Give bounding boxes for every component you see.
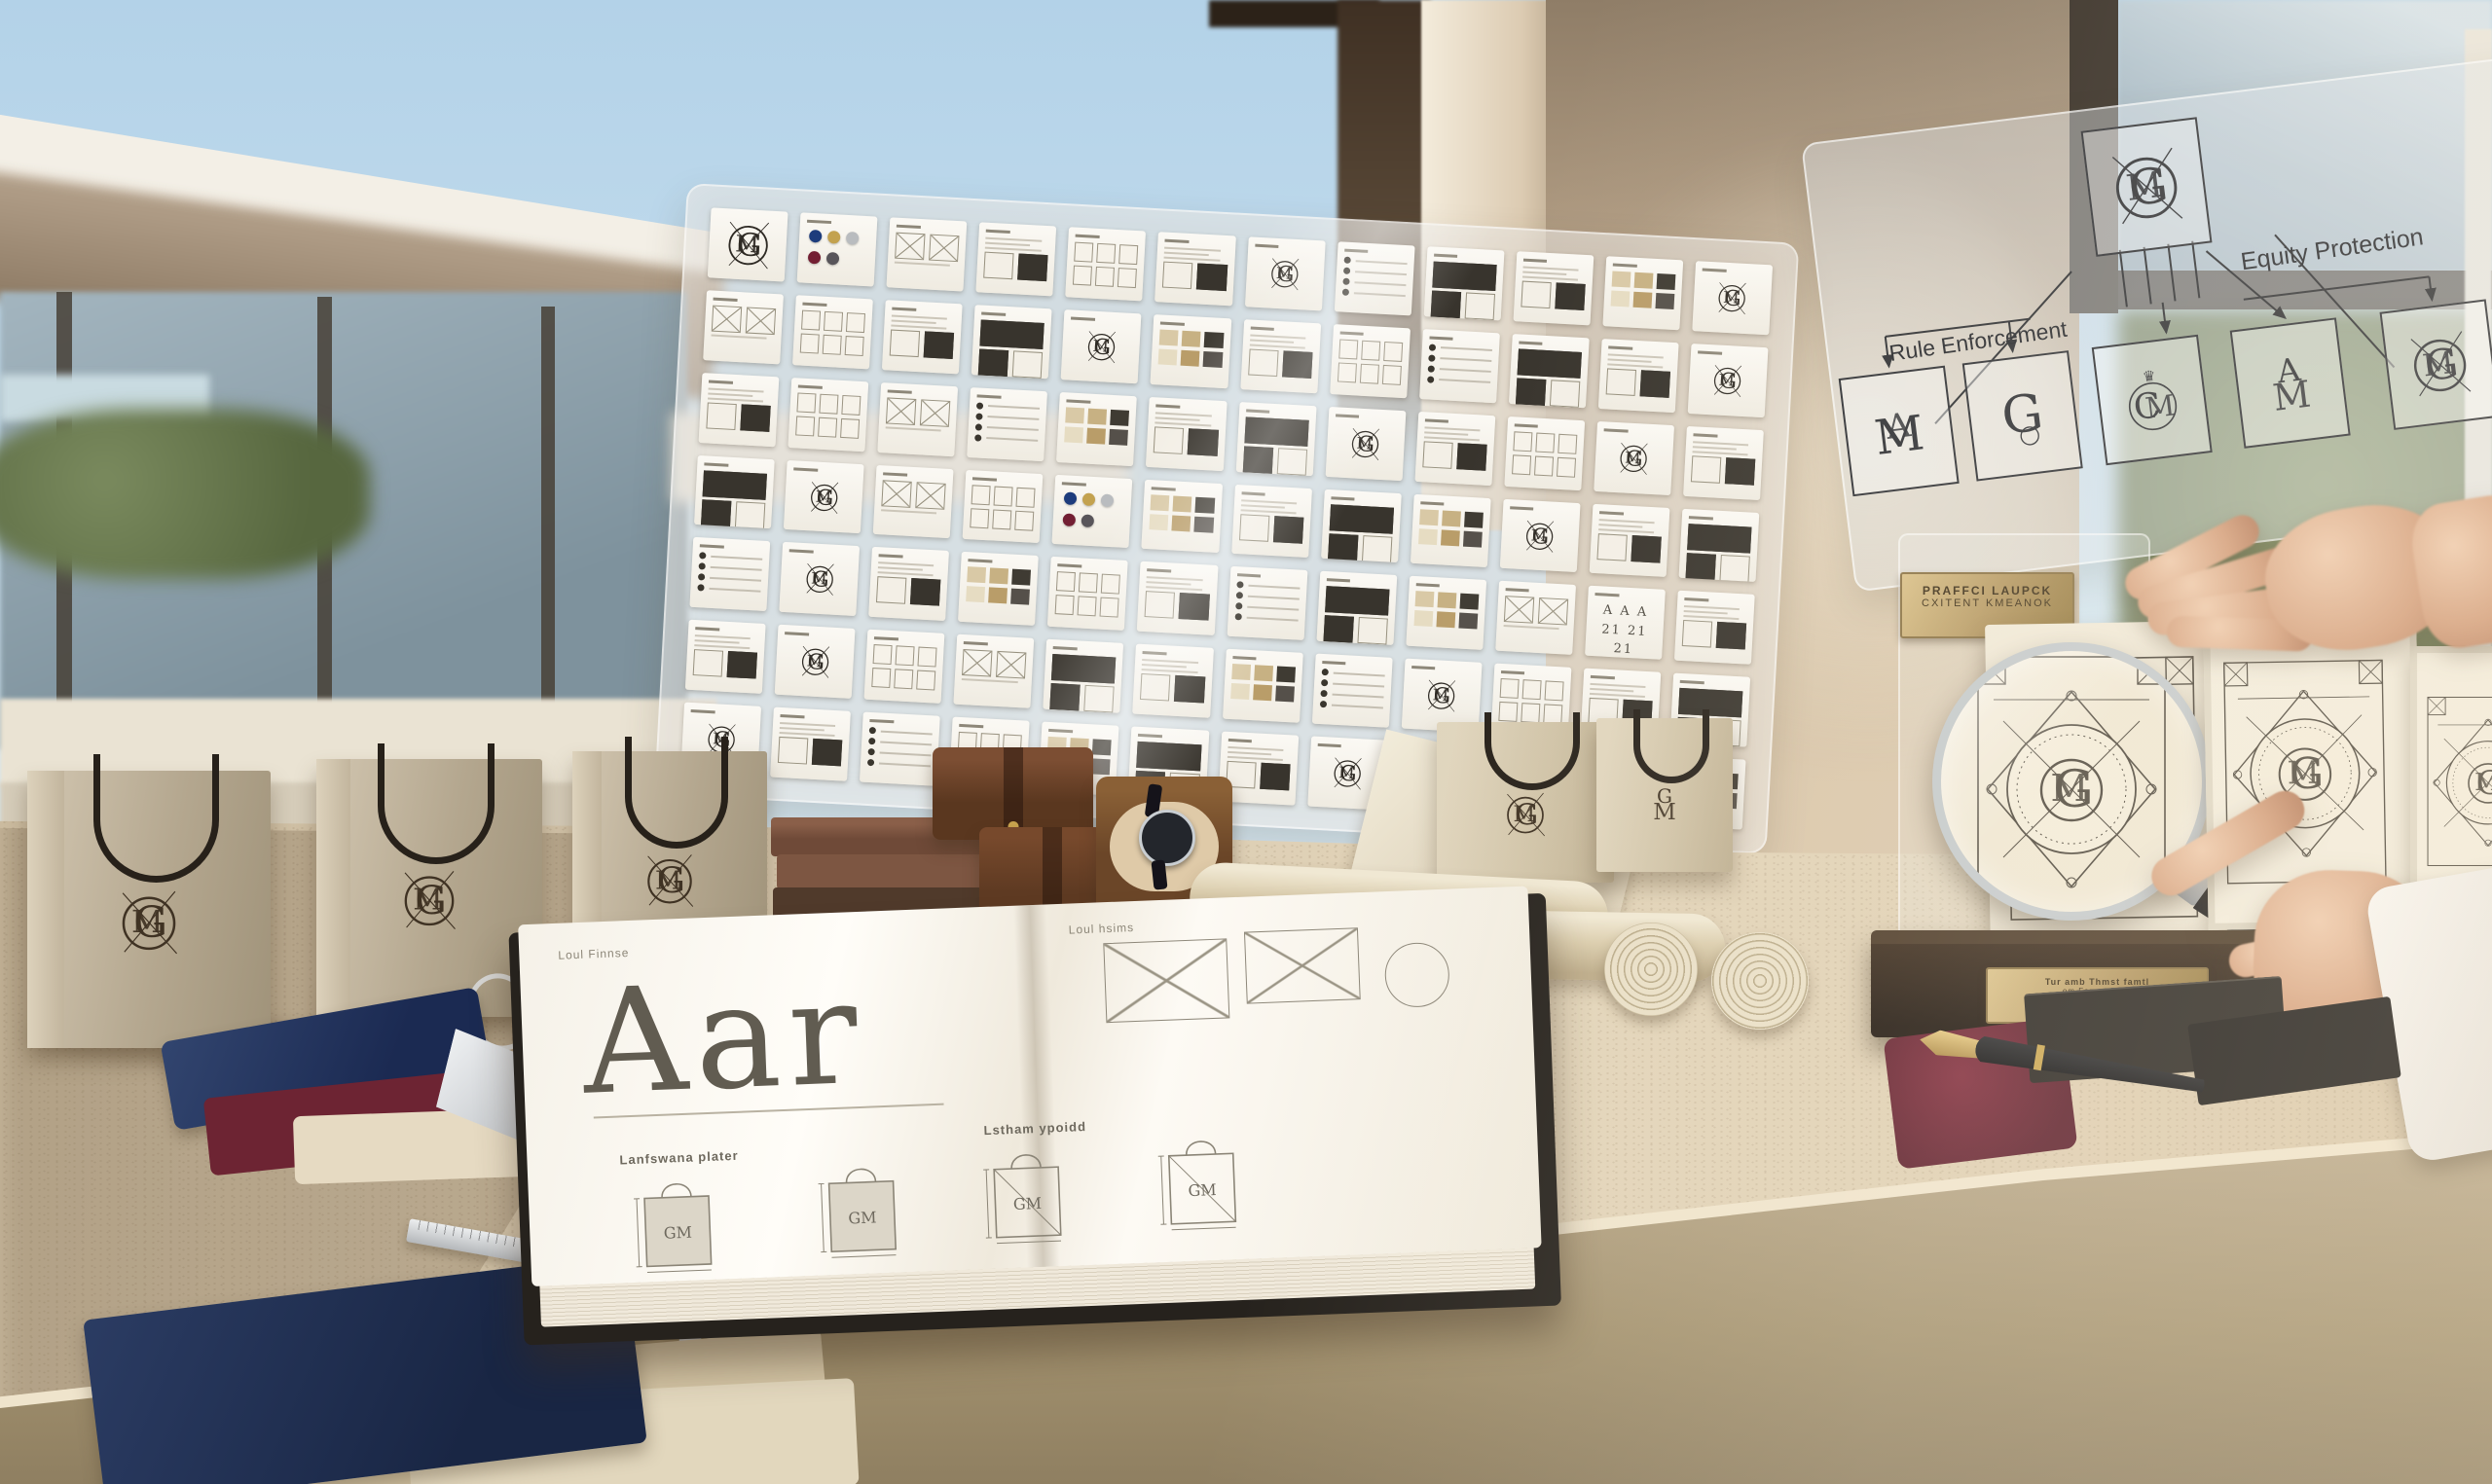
spec-box <box>1596 533 1627 561</box>
guideline-card-spec <box>868 547 949 621</box>
page-header: Loul hsims <box>1068 921 1134 937</box>
thumb-grid <box>1073 242 1138 288</box>
thumb-grid <box>1338 339 1403 384</box>
guideline-card-swatch <box>1411 493 1491 567</box>
guideline-card-palette <box>797 212 878 286</box>
card-title-bar <box>1317 743 1341 747</box>
svg-text:GM: GM <box>1013 1194 1043 1213</box>
garden-greenery <box>0 409 370 579</box>
guideline-card-layout <box>887 217 968 291</box>
guideline-card-spec <box>1133 644 1214 718</box>
svg-text:M: M <box>815 487 831 506</box>
pen-barrel <box>1973 1032 2207 1102</box>
card-title-bar <box>807 220 831 224</box>
guideline-card-spec <box>1683 426 1764 500</box>
gm-monogram-icon: GM <box>391 862 467 938</box>
spec-box <box>890 329 920 357</box>
guideline-card-mono: GM <box>779 542 860 616</box>
variant-box-am-apex: AM <box>2230 317 2351 448</box>
card-title-bar <box>1523 259 1548 263</box>
spec-box <box>1691 455 1721 484</box>
list-rows <box>697 553 762 595</box>
svg-text:M: M <box>810 569 826 589</box>
card-title-bar <box>1684 597 1708 601</box>
card-title-bar <box>1510 506 1534 510</box>
guideline-card-type3: A A A21 21 21 <box>1585 586 1666 660</box>
card-title-bar <box>1246 409 1270 413</box>
card-title-bar <box>1336 414 1360 417</box>
guideline-card-dark <box>1423 246 1504 320</box>
spec-box-dark <box>727 651 757 679</box>
guideline-card-grid <box>1047 557 1128 631</box>
layout-sketch <box>712 305 742 333</box>
gm-monogram-icon: GM <box>1420 674 1463 717</box>
watch-strap <box>1151 859 1167 889</box>
spec-box-dark <box>1631 535 1661 563</box>
guideline-card-dark <box>1316 571 1397 645</box>
guideline-card-list <box>1334 241 1414 315</box>
gm-monogram-icon: GM <box>1344 422 1387 465</box>
spec-box-dark <box>1456 443 1486 471</box>
guideline-card-spec <box>1155 232 1236 306</box>
open-pages: Loul Finnse Loul hsims Aar Lanfswana pla… <box>518 886 1542 1286</box>
guideline-card-grid <box>792 295 873 369</box>
layout-sketch <box>929 235 959 263</box>
ma-monogram-icon: MA <box>1854 386 1943 475</box>
svg-text:M: M <box>131 903 164 940</box>
layout-sketch <box>1504 596 1534 624</box>
spec-box-dark <box>1555 282 1585 310</box>
building-glass-facade <box>0 292 687 749</box>
card-text-lines <box>1522 267 1587 282</box>
variant-box-cm-crowned: ♛CM <box>2092 335 2213 465</box>
list-rows <box>1234 582 1300 624</box>
spec-box <box>1682 620 1712 648</box>
guideline-card-mono: GM <box>1692 261 1773 335</box>
bag-cord-handle <box>1633 709 1709 784</box>
bag-gusset <box>27 771 64 1048</box>
card-title-bar <box>1703 269 1727 272</box>
card-text-lines <box>694 634 758 650</box>
card-title-bar <box>1326 579 1350 583</box>
spec-box-dark <box>1260 763 1290 791</box>
card-title-bar <box>1138 734 1162 738</box>
card-title-bar <box>986 230 1010 234</box>
swatch-grid <box>1413 591 1479 629</box>
gm-monogram-icon: GM <box>108 882 190 963</box>
card-title-bar <box>959 724 983 728</box>
thumb-grid <box>1055 572 1120 618</box>
layout-sketch <box>996 651 1026 679</box>
guideline-card-list <box>1419 329 1500 403</box>
scroll-spiral-end <box>1711 932 1809 1030</box>
guideline-card-swatch <box>1056 392 1137 466</box>
card-title-bar <box>892 307 916 310</box>
guideline-card-dark <box>971 305 1052 379</box>
swatch-grid <box>1065 407 1130 445</box>
guideline-card-list <box>1311 654 1392 728</box>
guideline-card-dark <box>1321 489 1402 562</box>
packaging-sketch <box>1244 927 1361 1003</box>
guideline-card-layout <box>877 382 958 456</box>
card-text-lines <box>886 426 949 432</box>
gm-monogram-icon: GM <box>636 847 704 920</box>
guideline-card-mono: GM <box>1500 498 1581 572</box>
gm-monogram-icon: GM <box>108 882 190 968</box>
guideline-card-grid <box>864 630 945 704</box>
spec-box-dark <box>910 578 940 606</box>
bag-technical-drawing: GM <box>630 1166 726 1275</box>
guideline-card-mono: GM <box>775 625 856 699</box>
guideline-card-grid <box>1330 324 1411 398</box>
card-text-lines <box>1503 625 1566 631</box>
open-brand-book: Loul Finnse Loul hsims Aar Lanfswana pla… <box>518 886 1556 1343</box>
spec-box <box>1140 673 1170 702</box>
card-title-bar <box>1048 729 1073 733</box>
card-title-bar <box>874 636 898 640</box>
building-wood-band <box>0 170 725 400</box>
layout-sketch <box>886 397 916 425</box>
card-title-bar <box>897 225 921 229</box>
spec-box-dark <box>1716 622 1746 650</box>
svg-text:M: M <box>1092 337 1109 356</box>
guideline-card-dark <box>694 455 775 529</box>
guideline-card-layout <box>873 465 954 539</box>
spec-box-dark <box>740 404 770 432</box>
spec-box <box>1238 514 1268 542</box>
card-title-bar <box>1053 646 1078 650</box>
card-title-bar <box>793 467 818 471</box>
shopping-bag: GM <box>1596 718 1733 872</box>
guideline-card-mono: GM <box>1325 407 1406 481</box>
spec-box-dark <box>1639 370 1669 398</box>
root-monogram-box: GM <box>2081 117 2213 257</box>
card-text-lines <box>962 678 1025 684</box>
svg-text:M: M <box>1719 370 1736 389</box>
plaque-text: CXITENT KMEANOK <box>1902 597 2072 609</box>
svg-text:♛: ♛ <box>2142 368 2156 385</box>
gm-monogram-icon: GM <box>391 862 467 943</box>
gm-monogram-icon: GM <box>1080 325 1122 368</box>
spec-box <box>706 402 736 430</box>
variant-box-g-serif: G <box>1962 350 2083 481</box>
wristwatch <box>1139 810 1195 866</box>
spec-box <box>1521 281 1551 309</box>
guideline-card-swatch <box>958 552 1039 626</box>
bag-cord-handle <box>1484 712 1580 790</box>
layout-sketch <box>882 480 912 508</box>
card-text-lines <box>712 334 775 340</box>
card-title-bar <box>1429 336 1453 340</box>
spec-box <box>876 577 906 605</box>
circle-sketch <box>1384 942 1450 1008</box>
window-lintel <box>1209 0 1379 27</box>
card-title-bar <box>700 545 724 549</box>
guideline-card-mono: GM <box>1594 421 1674 495</box>
spec-box <box>1605 368 1635 396</box>
spec-box-dark <box>1179 593 1209 621</box>
spec-box-dark <box>924 331 954 359</box>
card-title-bar <box>888 389 912 393</box>
card-title-bar <box>981 311 1006 315</box>
gm-monogram-icon: GM <box>2396 320 2484 409</box>
window-mullion <box>541 307 555 749</box>
guideline-card-dark <box>1044 639 1124 713</box>
type-specimen: Aar <box>580 949 868 1127</box>
guideline-card-spec <box>1674 591 1755 665</box>
card-title-bar <box>1165 239 1190 243</box>
guideline-card-spec <box>1589 503 1669 577</box>
guideline-card-swatch <box>1223 649 1303 723</box>
card-text-lines <box>1142 659 1206 674</box>
card-title-bar <box>1594 593 1619 597</box>
gm-monogram-icon: GM <box>1706 359 1749 402</box>
guideline-card-spec <box>1414 412 1495 486</box>
card-title-bar <box>1415 584 1440 588</box>
card-text-lines <box>891 314 955 330</box>
spec-box-dark <box>1272 516 1302 544</box>
layout-sketch <box>920 399 950 427</box>
card-title-bar <box>1322 661 1346 665</box>
card-title-bar <box>785 632 809 635</box>
card-title-bar <box>1236 574 1261 578</box>
card-text-lines <box>1164 247 1228 263</box>
scroll-spiral-end <box>1604 923 1698 1016</box>
svg-text:M: M <box>1723 288 1740 308</box>
list-rows <box>867 727 933 769</box>
guideline-card-spec <box>1146 397 1227 471</box>
g-monogram-icon: G <box>1978 372 2067 460</box>
guideline-card-list <box>689 537 770 611</box>
gm-monogram-icon: GM <box>1497 786 1554 848</box>
shopping-bag: GM <box>1437 722 1614 883</box>
card-text-lines <box>985 237 1049 253</box>
svg-text:M: M <box>1356 433 1373 452</box>
swatch-grid <box>1150 494 1215 532</box>
card-title-bar <box>972 477 997 481</box>
list-rows <box>1319 669 1384 710</box>
guideline-card-mono: GM <box>1688 344 1769 417</box>
layout-sketch <box>746 307 776 335</box>
bag-cord-handle <box>378 743 495 864</box>
card-title-bar <box>1680 680 1704 684</box>
spec-box-dark <box>1725 457 1755 486</box>
card-title-bar <box>1058 564 1082 568</box>
card-title-bar <box>704 462 728 466</box>
guideline-card-spec <box>1137 561 1218 635</box>
guideline-card-dark <box>1509 334 1590 408</box>
swatch-grid <box>1158 329 1224 367</box>
spec-box <box>1248 348 1278 377</box>
svg-text:GM: GM <box>848 1208 877 1227</box>
card-text-lines <box>1683 605 1747 621</box>
guideline-card-palette <box>1052 474 1133 548</box>
guideline-card-spec <box>1598 339 1679 413</box>
variant-box-ma-interlock: MA <box>1839 366 1960 496</box>
gm-monogram-icon: GM <box>716 213 780 276</box>
layout-sketch <box>915 482 945 510</box>
gm-monogram-icon: GM <box>802 475 845 518</box>
card-title-bar <box>1420 501 1445 505</box>
thumb-grid <box>971 485 1036 530</box>
card-title-bar <box>1698 350 1722 354</box>
guideline-card-dark <box>1678 508 1759 582</box>
spec-box <box>1154 426 1184 454</box>
am-monogram-icon: AM <box>2246 339 2334 427</box>
swatch-grid <box>1230 664 1296 702</box>
layout-sketch <box>962 649 992 677</box>
plaque-text: PRAFFCI LAUPCK <box>1902 584 2072 597</box>
spec-box <box>778 737 808 765</box>
guideline-card-grid <box>963 470 1044 544</box>
guideline-card-swatch <box>1142 479 1223 553</box>
card-title-bar <box>1519 341 1543 344</box>
spec-box-dark <box>1282 350 1312 379</box>
guideline-card-grid <box>1504 416 1585 490</box>
card-title-bar <box>977 394 1002 398</box>
sea-horizon <box>0 375 209 421</box>
svg-text:M: M <box>2124 163 2165 209</box>
cm-monogram-icon: ♛CM <box>2107 355 2196 444</box>
studio-scene: GMGMGMGMGMGMGMGMGMGMA A A21 21 21GMGMGMG… <box>0 0 2492 1484</box>
card-title-bar <box>869 719 894 723</box>
card-text-lines <box>1240 499 1304 515</box>
spec-box-dark <box>1174 675 1204 704</box>
guideline-card-spec <box>685 620 766 694</box>
thumb-grid <box>795 392 861 438</box>
guideline-card-list <box>1227 566 1307 640</box>
card-text-lines <box>708 387 772 403</box>
packaging-sketch <box>1103 938 1229 1023</box>
card-title-bar <box>1160 321 1185 325</box>
card-title-bar <box>964 641 988 645</box>
card-title-bar <box>1613 264 1637 268</box>
card-text-lines <box>1147 577 1211 593</box>
card-title-bar <box>1603 428 1628 432</box>
gm-monogram-icon: GM <box>2095 135 2199 239</box>
card-text-lines <box>1249 334 1313 349</box>
card-title-bar <box>1411 666 1436 670</box>
card-title-bar <box>781 714 805 718</box>
am-monogram-icon: GM <box>1640 779 1689 828</box>
guideline-card-layout <box>703 290 784 364</box>
card-title-bar <box>798 384 823 388</box>
window-mullion <box>317 297 332 749</box>
card-text-lines <box>878 562 942 578</box>
spec-box <box>1422 441 1452 469</box>
svg-text:M: M <box>1625 448 1641 467</box>
thumb-grid <box>800 309 865 355</box>
card-text-lines <box>895 262 958 268</box>
card-title-bar <box>1501 670 1525 674</box>
card-title-bar <box>1434 254 1458 258</box>
swatch-grid <box>966 567 1031 605</box>
guideline-card-spec <box>882 300 963 374</box>
gm-monogram-icon: GM <box>636 847 704 915</box>
swatch-grid <box>1610 271 1675 309</box>
gm-monogram-icon: GM <box>1264 252 1306 295</box>
guideline-card-logo: GM <box>708 207 788 281</box>
guideline-card-grid <box>788 378 869 452</box>
spec-box <box>1162 262 1192 290</box>
guideline-card-list <box>860 712 940 786</box>
svg-text:GM: GM <box>1188 1180 1217 1200</box>
svg-text:M: M <box>655 865 681 895</box>
bag-technical-drawing: GM <box>1154 1124 1251 1233</box>
bag-cord-handle <box>93 754 219 883</box>
card-title-bar <box>1071 316 1095 320</box>
card-title-bar <box>1425 418 1449 422</box>
bag-cord-handle <box>625 737 728 849</box>
spec-box-dark <box>812 739 842 767</box>
card-title-bar <box>1344 249 1369 253</box>
card-title-bar <box>789 550 814 554</box>
card-title-bar <box>1591 675 1615 679</box>
card-title-bar <box>714 297 738 301</box>
card-title-bar <box>1143 651 1167 655</box>
am-monogram-icon: GM <box>1640 779 1689 833</box>
guideline-card-spec <box>1513 251 1594 325</box>
svg-text:M: M <box>806 652 823 671</box>
guideline-card-grid <box>1066 227 1147 301</box>
card-text-lines <box>881 509 944 515</box>
svg-text:M: M <box>734 230 759 258</box>
guideline-card-list <box>967 387 1047 461</box>
guideline-card-mono: GM <box>784 460 864 534</box>
svg-text:M: M <box>1275 264 1292 283</box>
card-title-bar <box>1331 496 1355 500</box>
guideline-card-swatch <box>1406 576 1486 650</box>
card-title-bar <box>969 560 993 563</box>
card-text-lines <box>1598 519 1663 534</box>
card-title-bar <box>1076 235 1100 238</box>
section-heading: Lstham ypoidd <box>983 1119 1086 1138</box>
gm-monogram-icon: GM <box>1711 276 1754 319</box>
spec-box-dark <box>1188 428 1218 456</box>
card-title-bar <box>1608 345 1632 349</box>
variant-box-gm-circle: GM <box>2379 299 2492 429</box>
card-text-lines <box>780 722 844 738</box>
card-title-bar <box>802 302 826 306</box>
card-title-bar <box>691 709 715 713</box>
guideline-card-spec <box>1231 484 1312 558</box>
layout-sketch <box>1538 597 1568 626</box>
gm-monogram-icon: GM <box>1612 437 1655 480</box>
swatch-grid <box>1418 509 1484 547</box>
card-title-bar <box>1505 588 1529 592</box>
card-text-lines <box>1590 683 1654 699</box>
bag-technical-drawing: GM <box>814 1151 910 1260</box>
card-title-bar <box>879 555 903 559</box>
guideline-card-layout <box>954 634 1035 708</box>
svg-text:M: M <box>2144 388 2177 424</box>
svg-text:M: M <box>1432 685 1448 705</box>
card-title-bar <box>1228 739 1252 742</box>
svg-text:M: M <box>1530 525 1547 545</box>
card-title-bar <box>1339 331 1364 335</box>
spec-box <box>1145 592 1175 620</box>
card-text-lines <box>1155 412 1220 427</box>
gm-monogram-icon: GM <box>798 558 841 600</box>
svg-text:M: M <box>1514 803 1536 827</box>
guideline-card-spec <box>976 222 1057 296</box>
list-rows <box>974 402 1040 444</box>
card-text-lines <box>1424 426 1488 442</box>
guideline-card-spec <box>699 373 780 447</box>
gm-monogram-icon: GM <box>793 640 836 683</box>
bag-technical-drawing: GM <box>979 1138 1076 1247</box>
spec-box-dark <box>1017 254 1047 282</box>
